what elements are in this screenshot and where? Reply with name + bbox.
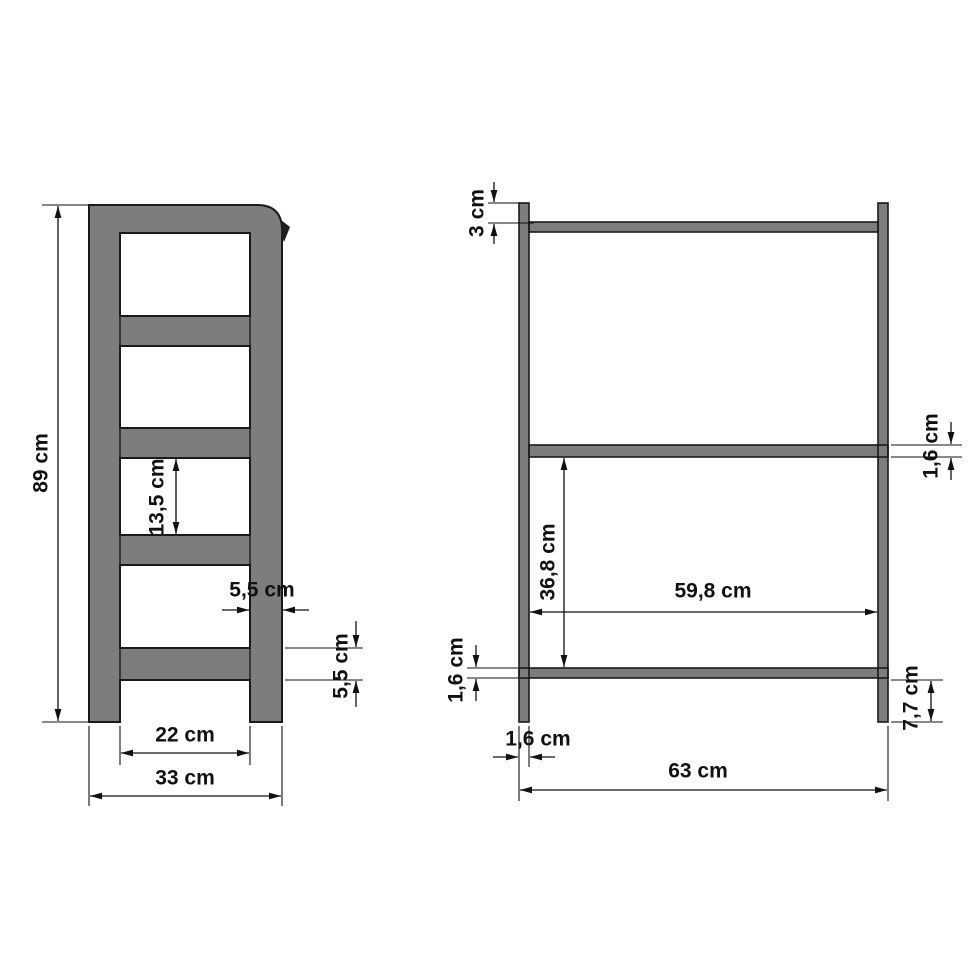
opening-2 [120,346,250,428]
dimension-drawing: 89 cm 13,5 cm 5,5 cm 5,5 cm 22 cm [0,0,973,972]
dim-label-middle-shelf-thickness: 1,6 cm [920,413,943,478]
dim-label-bottom-shelf-thickness: 1,6 cm [445,637,468,702]
drawing-canvas: 89 cm 13,5 cm 5,5 cm 5,5 cm 22 cm [0,0,973,972]
dim-leg-inner-span: 22 cm [120,724,250,766]
dim-label-top-overhang: 3 cm [466,189,489,237]
dim-label-overall-width: 63 cm [668,760,728,783]
dim-bottom-shelf-thickness: 1,6 cm [445,637,519,702]
dim-foot-height: 7,7 cm [891,665,943,730]
dim-label-leg-inner-span: 22 cm [155,724,215,747]
right-post [878,203,888,722]
dim-label-shelf-clear-height: 36,8 cm [537,523,560,600]
dim-overall-width: 63 cm [520,726,888,801]
dim-bottom-rail-thickness: 5,5 cm [285,621,363,707]
dim-inner-width: 59,8 cm [530,580,877,613]
top-shelf-bar [529,222,878,232]
side-view: 89 cm 13,5 cm 5,5 cm 5,5 cm 22 cm [30,205,364,806]
dim-label-opening-height: 13,5 cm [146,458,169,535]
opening-1 [120,233,250,316]
dim-label-bottom-rail-thickness: 5,5 cm [330,633,353,698]
dim-label-foot-height: 7,7 cm [900,665,923,730]
middle-shelf-bar [529,445,888,457]
dim-label-inner-width: 59,8 cm [674,580,751,603]
opening-4 [120,565,250,648]
dim-middle-shelf-thickness: 1,6 cm [891,413,962,480]
left-post [519,203,529,722]
opening-3 [120,458,250,535]
dim-label-overall-depth: 33 cm [155,767,215,790]
dim-label-rail-depth: 5,5 cm [229,579,294,602]
dim-label-overall-height: 89 cm [30,433,53,493]
front-view: 3 cm 1,6 cm 36,8 cm 59,8 cm 1,6 cm [445,182,963,801]
bottom-shelf-bar [519,668,888,678]
dim-shelf-clear-height: 36,8 cm [537,458,565,667]
dim-label-post-thickness: 1,6 cm [505,728,570,751]
dim-overall-height: 89 cm [30,205,89,722]
